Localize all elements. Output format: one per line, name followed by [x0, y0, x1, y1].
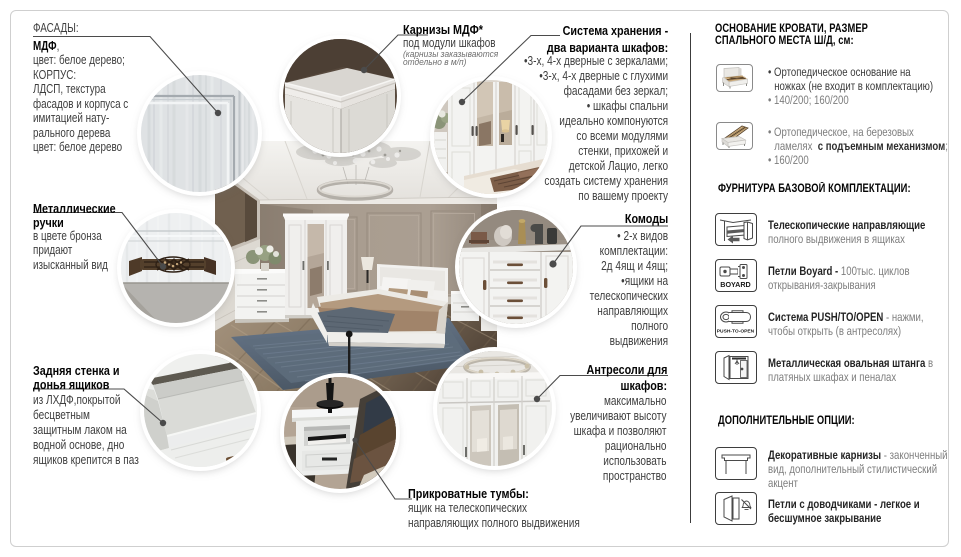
svg-text:PUSH-TO-OPEN: PUSH-TO-OPEN — [717, 329, 755, 335]
svg-text:BOYARD: BOYARD — [720, 280, 751, 289]
